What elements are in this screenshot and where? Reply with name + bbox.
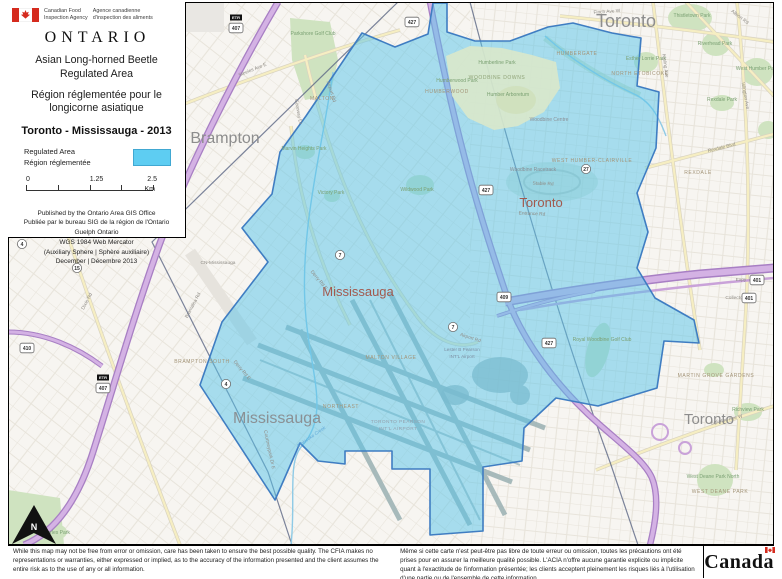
map-document-page: TorontoBramptonTorontoMississaugaMississ…	[0, 0, 782, 579]
map-label: TORONTO PEARSON	[371, 419, 426, 425]
regulated-area-swatch	[133, 149, 171, 166]
map-label: INT'L Airport	[449, 354, 475, 359]
svg-text:7: 7	[339, 253, 342, 259]
svg-text:401: 401	[753, 278, 762, 284]
map-label: HUMBERGATE	[557, 51, 598, 57]
svg-text:407: 407	[232, 26, 241, 32]
map-label: Thistletown Park	[674, 13, 711, 19]
agency-name-en: Canadian Food Inspection Agency	[44, 8, 88, 22]
map-label: Humberwood Park	[436, 78, 478, 84]
route-shield-427: 427	[479, 185, 493, 195]
svg-text:4: 4	[225, 382, 228, 388]
industrial-block	[186, 2, 224, 32]
map-label: Humberline Park	[478, 60, 516, 66]
route-shield-409: 409	[497, 292, 511, 302]
map-label: Humber Arboretum	[487, 92, 529, 98]
svg-text:401: 401	[745, 296, 754, 302]
wordmark-flag-icon	[765, 547, 775, 553]
map-label: Toronto	[519, 195, 562, 210]
map-label: REXDALE	[684, 170, 712, 176]
svg-text:ETR: ETR	[232, 15, 240, 20]
map-label: Woodbine Racetrack	[510, 167, 557, 173]
map-label: Esther Lorrie Park	[626, 56, 667, 62]
map-title-en: Asian Long-horned Beetle Regulated Area	[12, 54, 181, 82]
map-label: Stable Rd	[532, 181, 554, 188]
map-label: NORTH ETOBICOKE	[611, 71, 668, 77]
map-label: Mississauga	[233, 410, 321, 427]
map-label: MARTIN GROVE GARDENS	[678, 373, 755, 379]
map-label: Mississauga	[322, 284, 394, 299]
map-subtitle: Toronto - Mississauga - 2013	[12, 125, 181, 137]
map-label: WEST DEANE PARK	[692, 489, 749, 495]
agency-name-fr: Agence canadienne d'inspection des alime…	[93, 8, 153, 22]
route-shield-407: ETR407	[96, 375, 110, 393]
map-label: WEST HUMBER-CLAIRVILLE	[552, 158, 633, 164]
route-shield-407: ETR407	[229, 15, 243, 33]
north-arrow-label: N	[31, 522, 38, 532]
regulated-area-labels: Regulated Area Région réglementée	[24, 147, 91, 168]
route-shield-4: 4	[221, 379, 230, 388]
region-title: ONTARIO	[14, 29, 181, 47]
publisher-block: Published by the Ontario Area GIS Office…	[12, 209, 181, 268]
scale-unit: Km	[145, 186, 156, 193]
agency-header: Canadian Food Inspection Agency Agence c…	[12, 8, 181, 22]
svg-text:27: 27	[583, 167, 589, 173]
map-label: West Deane Park North	[687, 474, 740, 480]
legend-item-regulated-area: Regulated Area Région réglementée	[24, 147, 171, 168]
map-label: CN-Mississauga	[201, 260, 236, 266]
map-label: MALTON VILLAGE	[365, 355, 416, 361]
map-label: Victory Park	[318, 190, 345, 196]
svg-text:407: 407	[99, 386, 108, 392]
scale-tick-0: 0	[26, 176, 30, 183]
map-label: Lester B Pearson	[444, 347, 480, 352]
map-label: Parkshore Golf Club	[290, 31, 335, 37]
route-shield-410: 410	[20, 343, 34, 353]
svg-text:427: 427	[545, 341, 554, 347]
footer-bar: While this map may not be free from erro…	[8, 546, 774, 578]
svg-text:427: 427	[408, 20, 417, 26]
legend-panel: Canadian Food Inspection Agency Agence c…	[8, 2, 186, 238]
scale-tick-mid: 1.25	[90, 176, 104, 183]
map-title-fr: Région réglementée pour le longicorne as…	[12, 89, 181, 117]
disclaimer-en: While this map may not be free from erro…	[8, 546, 395, 578]
map-label: Woodbine Centre	[530, 117, 569, 123]
map-label: Expy	[736, 277, 747, 283]
map-label: HUMBERWOOD	[425, 89, 469, 95]
svg-text:427: 427	[482, 188, 491, 194]
map-label: BRAMPTON SOUTH	[174, 359, 230, 365]
route-shield-7: 7	[335, 250, 344, 259]
svg-text:ETR: ETR	[99, 375, 107, 380]
svg-text:7: 7	[452, 325, 455, 331]
map-label: NORTHEAST	[323, 404, 359, 410]
route-shield-427: 427	[542, 338, 556, 348]
svg-text:409: 409	[500, 295, 509, 301]
route-shield-401: 401	[742, 293, 756, 303]
route-shield-27: 27	[581, 164, 590, 173]
disclaimer-fr: Même si cette carte n'est peut-être pas …	[395, 546, 703, 578]
arboretum-inner	[496, 86, 536, 114]
scale-bar: 0 1.25 2.5 Km	[26, 176, 167, 200]
map-label: Riverhead Park	[698, 41, 733, 47]
canada-wordmark: Canada	[704, 551, 774, 574]
route-shield-401: 401	[750, 275, 764, 285]
canada-wordmark-cell: Canada	[703, 546, 774, 578]
svg-text:410: 410	[23, 346, 32, 352]
map-label: Brampton	[190, 130, 259, 147]
map-label: Rexdale Park	[707, 97, 738, 103]
map-label: Marvin Heights Park	[281, 146, 327, 152]
map-label: Richview Park	[732, 407, 764, 413]
map-label: Wildwood Park	[400, 187, 434, 193]
route-shield-427: 427	[405, 17, 419, 27]
canada-flag-icon	[12, 8, 39, 22]
map-label: Entrance Rd	[519, 211, 546, 218]
map-label: Royal Woodbine Golf Club	[573, 337, 632, 343]
map-label: INT'L AIRPORT	[379, 426, 418, 432]
map-label: West Humber Park	[736, 66, 774, 72]
route-shield-7: 7	[448, 322, 457, 331]
scale-tick-max: 2.5	[147, 176, 157, 183]
